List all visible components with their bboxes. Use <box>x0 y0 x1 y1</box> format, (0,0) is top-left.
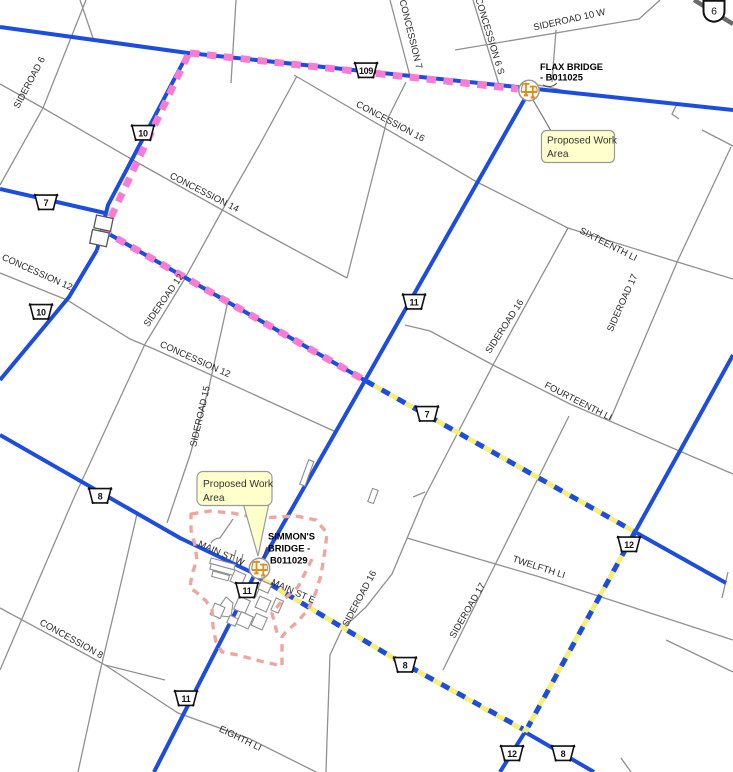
svg-text:Proposed Work: Proposed Work <box>203 479 274 490</box>
svg-text:SIMMON'S: SIMMON'S <box>268 531 315 542</box>
svg-text:12: 12 <box>507 749 517 759</box>
svg-text:7: 7 <box>425 410 430 420</box>
svg-text:Proposed Work: Proposed Work <box>547 136 618 147</box>
svg-text:Area: Area <box>547 149 569 160</box>
svg-text:8: 8 <box>561 749 566 759</box>
svg-text:11: 11 <box>410 298 419 308</box>
svg-text:8: 8 <box>403 661 408 671</box>
svg-text:8: 8 <box>98 492 103 502</box>
svg-text:Area: Area <box>203 493 225 504</box>
svg-text:11: 11 <box>182 694 191 704</box>
svg-text:BRIDGE -: BRIDGE - <box>268 543 310 554</box>
svg-text:109: 109 <box>359 66 373 76</box>
svg-text:FLAX BRIDGE: FLAX BRIDGE <box>540 62 603 72</box>
svg-text:6: 6 <box>711 6 717 18</box>
svg-text:10: 10 <box>138 129 148 139</box>
svg-text:- B011025: - B011025 <box>540 73 583 83</box>
svg-text:B011029: B011029 <box>270 555 308 566</box>
svg-text:11: 11 <box>243 586 252 596</box>
svg-text:12: 12 <box>624 540 634 550</box>
svg-text:7: 7 <box>44 198 49 208</box>
svg-text:10: 10 <box>36 308 46 318</box>
